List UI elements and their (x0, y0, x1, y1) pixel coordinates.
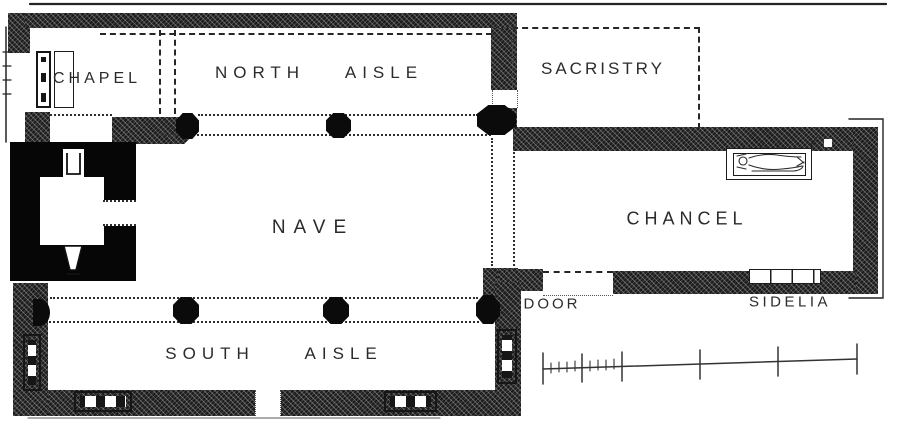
south-arcade-lower-dotted (33, 321, 479, 323)
south-aisle-label: SOUTH AISLE (165, 344, 382, 364)
chancel-door-opening (543, 271, 613, 296)
tower-arch-to-nave (103, 200, 136, 226)
south-arcade-southeast-pier (476, 295, 500, 324)
tomb-inner-frame (733, 153, 806, 176)
chancel-arch-north-respond (477, 105, 516, 135)
chapel-south-dotted (50, 114, 112, 116)
chapel-aisle-divider-west (159, 30, 161, 114)
north-aisle-label: NORTH AISLE (215, 63, 423, 83)
chancel-arch-dotted-east (513, 152, 515, 266)
north-arcade-lower-dotted (161, 134, 491, 136)
chancel-wall-notch (824, 139, 832, 147)
south-door-opening (255, 390, 281, 416)
chapel-west-window (36, 51, 51, 108)
south-aisle-west-window (23, 334, 41, 391)
north-arcade-pier (326, 113, 351, 138)
sedilia-recess (749, 269, 821, 284)
south-arcade-upper-dotted (50, 297, 478, 299)
chapel-west-wall-block (25, 112, 50, 144)
sedilia-label: SIDELIA (749, 294, 831, 311)
south-arcade-pier-east (323, 297, 349, 324)
chapel-aisle-divider-east (174, 30, 176, 114)
south-window-west (74, 391, 132, 412)
chapel-label: CHAPEL (53, 70, 141, 88)
chancel-label: CHANCEL (626, 209, 747, 230)
church-floor-plan: CHAPEL NORTH AISLE SACRISTRY NAVE CHANCE… (0, 0, 899, 429)
south-arcade-pier-west (173, 297, 199, 324)
north-arcade-west-pier (176, 113, 199, 139)
chancel-east-wall (853, 127, 878, 294)
south-window-east (384, 391, 437, 412)
sacristry-label: SACRISTRY (541, 59, 665, 79)
tower-interior (40, 177, 104, 245)
chancel-arch-dotted-west (491, 138, 493, 266)
nave-label: NAVE (272, 217, 354, 239)
door-label: DOOR (524, 296, 581, 313)
north-wall (25, 13, 517, 28)
scale-bar (543, 344, 857, 384)
west-outer-ticks (3, 52, 11, 94)
south-aisle-east-window (497, 329, 517, 384)
